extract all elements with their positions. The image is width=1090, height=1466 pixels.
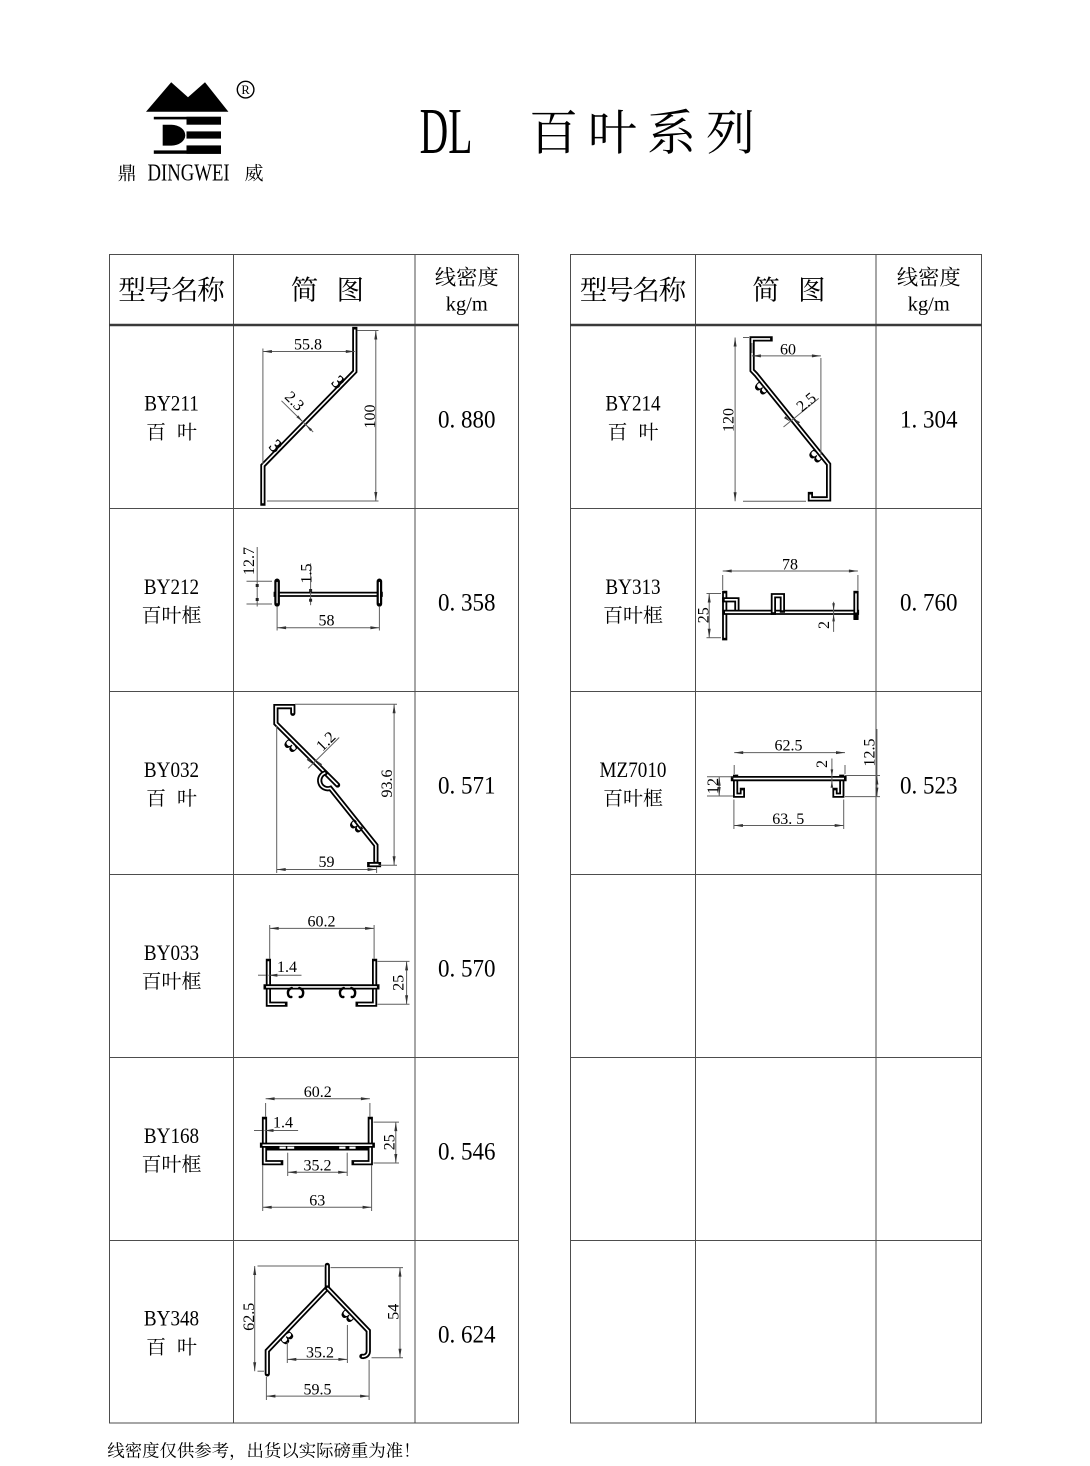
svg-text:100: 100 (362, 405, 379, 429)
svg-text:12.7: 12.7 (241, 547, 258, 575)
svg-text:60.2: 60.2 (308, 914, 336, 931)
svg-text:1.4: 1.4 (277, 959, 297, 976)
svg-text:58: 58 (319, 613, 335, 630)
svg-text:MZ7010: MZ7010 (600, 756, 667, 782)
svg-text:BY168: BY168 (144, 1122, 199, 1148)
svg-text:25: 25 (695, 607, 712, 623)
svg-text:2: 2 (814, 760, 831, 768)
svg-text:BY032: BY032 (144, 756, 199, 782)
svg-text:2: 2 (816, 621, 833, 629)
svg-text:12.5: 12.5 (862, 739, 879, 767)
svg-text:59.5: 59.5 (304, 1381, 332, 1398)
svg-text:BY211: BY211 (144, 390, 199, 416)
svg-text:62.5: 62.5 (775, 738, 803, 755)
svg-text:R: R (241, 83, 250, 97)
svg-text:35.2: 35.2 (306, 1345, 334, 1362)
svg-text:DL: DL (420, 95, 473, 168)
svg-text:0. 571: 0. 571 (438, 773, 495, 800)
svg-text:55.8: 55.8 (294, 337, 322, 354)
svg-text:1.5: 1.5 (299, 564, 316, 584)
svg-text:0. 358: 0. 358 (438, 590, 495, 617)
svg-text:1. 304: 1. 304 (900, 407, 957, 434)
svg-text:35.2: 35.2 (304, 1157, 332, 1174)
svg-text:0. 570: 0. 570 (438, 956, 495, 983)
svg-text:BY214: BY214 (605, 390, 661, 416)
svg-text:60.2: 60.2 (304, 1084, 332, 1101)
svg-text:0. 624: 0. 624 (438, 1322, 495, 1349)
svg-text:0. 546: 0. 546 (438, 1139, 495, 1166)
svg-text:59: 59 (319, 854, 335, 871)
svg-text:DINGWEI: DINGWEI (148, 159, 230, 186)
svg-text:kg/m: kg/m (446, 294, 488, 316)
svg-text:60: 60 (780, 342, 796, 359)
svg-text:BY348: BY348 (144, 1305, 199, 1331)
svg-text:0. 760: 0. 760 (900, 590, 957, 617)
svg-text:25: 25 (382, 1134, 399, 1150)
svg-text:62.5: 62.5 (241, 1303, 258, 1331)
svg-text:1.4: 1.4 (273, 1115, 293, 1132)
svg-text:kg/m: kg/m (908, 294, 950, 316)
svg-text:12: 12 (705, 778, 722, 794)
svg-text:25: 25 (391, 975, 408, 991)
svg-text:54: 54 (386, 1304, 403, 1320)
svg-text:0. 523: 0. 523 (900, 773, 957, 800)
svg-text:BY033: BY033 (144, 939, 199, 965)
svg-text:78: 78 (782, 557, 798, 574)
svg-text:93.6: 93.6 (379, 770, 396, 798)
svg-text:63. 5: 63. 5 (772, 811, 804, 828)
svg-text:BY313: BY313 (605, 573, 660, 599)
svg-text:0. 880: 0. 880 (438, 407, 495, 434)
svg-text:120: 120 (721, 408, 738, 432)
svg-text:63: 63 (309, 1193, 325, 1210)
svg-text:BY212: BY212 (144, 573, 199, 599)
